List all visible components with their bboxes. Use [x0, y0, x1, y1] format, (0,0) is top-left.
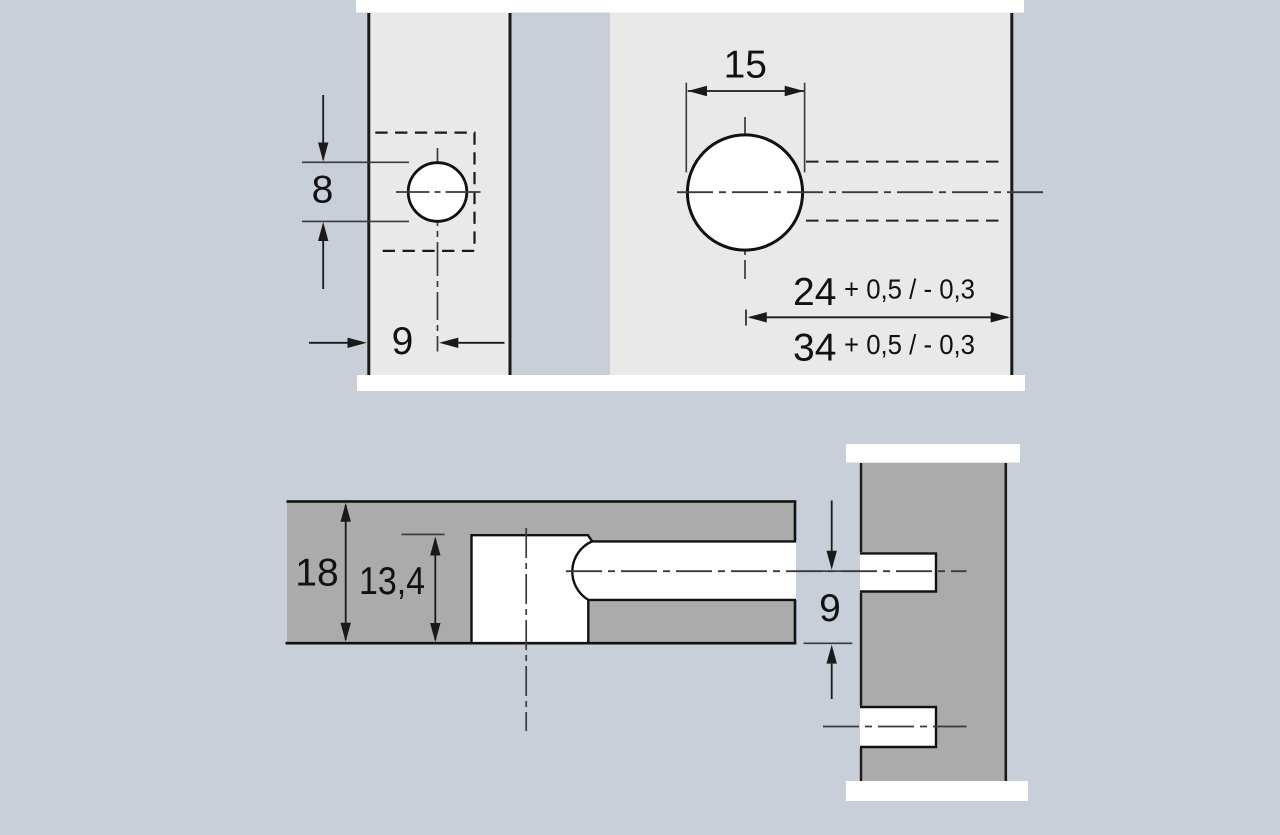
svg-text:9: 9: [392, 320, 414, 363]
svg-text:+ 0,5 / - 0,3: + 0,5 / - 0,3: [844, 329, 975, 360]
svg-text:15: 15: [724, 44, 767, 87]
svg-text:18: 18: [295, 552, 338, 595]
svg-text:13,4: 13,4: [359, 560, 425, 603]
svg-text:24: 24: [793, 271, 836, 314]
svg-text:8: 8: [312, 169, 334, 212]
svg-text:+ 0,5 / - 0,3: + 0,5 / - 0,3: [844, 274, 975, 305]
svg-text:9: 9: [819, 587, 841, 630]
svg-text:34: 34: [793, 327, 836, 370]
